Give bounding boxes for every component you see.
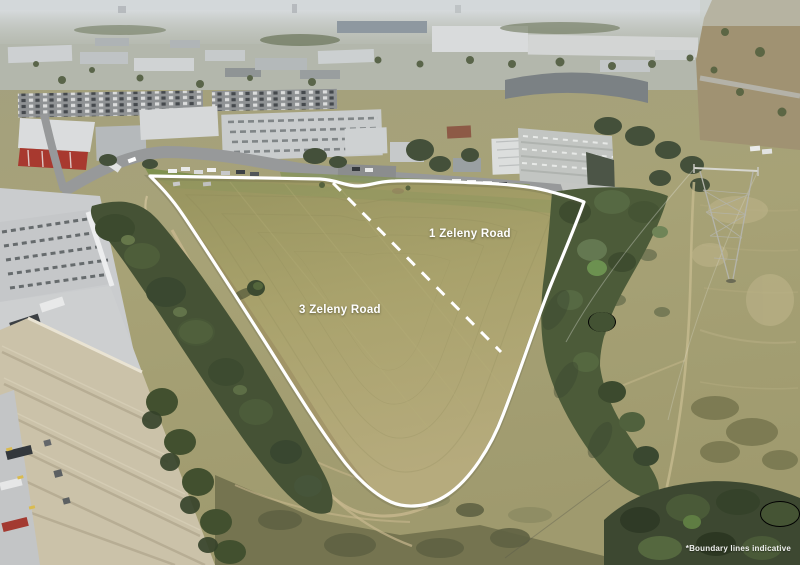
aerial-property-photo: 1 Zeleny Road 3 Zeleny Road *Boundary li…: [0, 0, 800, 565]
car-yard: [212, 89, 337, 111]
aerial-scene: [0, 0, 800, 565]
boundary-disclaimer: *Boundary lines indicative: [686, 544, 791, 553]
top-right-paddocks: [696, 0, 800, 150]
container-stack: [447, 125, 472, 138]
